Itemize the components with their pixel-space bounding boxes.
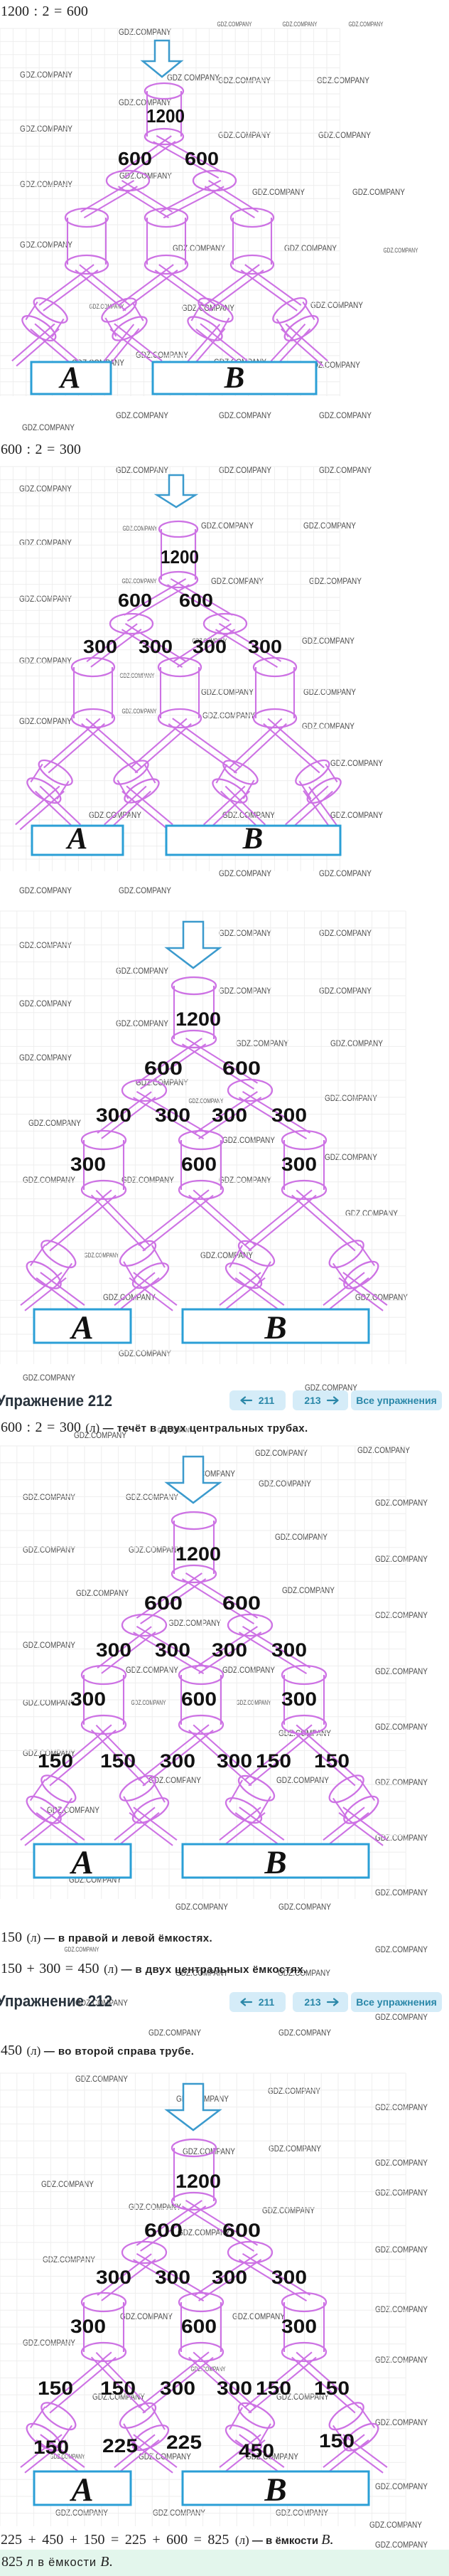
svg-text:GDZ.COMPANY: GDZ.COMPANY xyxy=(278,2028,331,2038)
svg-text:300: 300 xyxy=(70,2316,106,2337)
svg-text:GDZ.COMPANY: GDZ.COMPANY xyxy=(175,1902,228,1912)
svg-text:GDZ.COMPANY: GDZ.COMPANY xyxy=(20,240,72,250)
svg-text:300: 300 xyxy=(96,2267,131,2288)
svg-text:GDZ.COMPANY: GDZ.COMPANY xyxy=(120,2311,173,2321)
svg-text:150: 150 xyxy=(256,1750,291,1772)
svg-text:GDZ.COMPANY: GDZ.COMPANY xyxy=(22,422,75,432)
svg-text:600: 600 xyxy=(144,1058,183,1079)
svg-text:1200 : 2 = 600: 1200 : 2 = 600 xyxy=(1,4,88,19)
svg-text:GDZ.COMPANY: GDZ.COMPANY xyxy=(20,70,72,80)
svg-text:GDZ.COMPANY: GDZ.COMPANY xyxy=(283,21,318,28)
svg-text:150: 150 xyxy=(38,1750,73,1772)
svg-text:150: 150 xyxy=(100,2378,136,2399)
svg-text:1200: 1200 xyxy=(161,546,199,568)
svg-text:300: 300 xyxy=(212,1639,247,1661)
svg-text:300: 300 xyxy=(155,1105,190,1126)
svg-text:225: 225 xyxy=(166,2432,202,2453)
svg-text:1200: 1200 xyxy=(146,105,185,127)
svg-text:GDZ.COMPANY: GDZ.COMPANY xyxy=(19,999,72,1008)
svg-text:A: A xyxy=(58,361,81,395)
svg-text:GDZ.COMPANY: GDZ.COMPANY xyxy=(375,2355,428,2365)
svg-text:450: 450 xyxy=(239,2440,274,2461)
svg-text:GDZ.COMPANY: GDZ.COMPANY xyxy=(318,130,371,140)
svg-text:300: 300 xyxy=(281,1154,317,1175)
svg-text:300: 300 xyxy=(271,2267,307,2288)
svg-text:GDZ.COMPANY: GDZ.COMPANY xyxy=(275,1532,328,1542)
svg-text:GDZ.COMPANY: GDZ.COMPANY xyxy=(375,2540,428,2550)
svg-text:GDZ.COMPANY: GDZ.COMPANY xyxy=(375,2245,428,2255)
svg-text:GDZ.COMPANY: GDZ.COMPANY xyxy=(19,594,72,604)
svg-text:300: 300 xyxy=(271,1639,307,1661)
svg-text:Все упражнения: Все упражнения xyxy=(356,1996,437,2008)
svg-text:Все упражнения: Все упражнения xyxy=(356,1395,437,1406)
svg-text:150: 150 xyxy=(38,2378,73,2399)
svg-text:GDZ.COMPANY: GDZ.COMPANY xyxy=(375,1498,428,1508)
svg-text:150: 150 xyxy=(33,2437,69,2458)
svg-text:GDZ.COMPANY: GDZ.COMPANY xyxy=(269,2144,321,2154)
svg-text:A: A xyxy=(69,1309,93,1346)
svg-text:GDZ.COMPANY: GDZ.COMPANY xyxy=(255,1448,308,1458)
svg-text:GDZ.COMPANY: GDZ.COMPANY xyxy=(219,1175,271,1185)
svg-text:300: 300 xyxy=(160,1750,195,1772)
svg-text:GDZ.COMPANY: GDZ.COMPANY xyxy=(20,124,72,134)
svg-text:B: B xyxy=(264,1309,286,1346)
svg-text:GDZ.COMPANY: GDZ.COMPANY xyxy=(219,410,271,420)
svg-text:B: B xyxy=(224,361,245,395)
svg-text:GDZ.COMPANY: GDZ.COMPANY xyxy=(303,687,356,697)
svg-text:GDZ.COMPANY: GDZ.COMPANY xyxy=(319,928,372,938)
svg-text:300: 300 xyxy=(96,1105,131,1126)
svg-text:GDZ.COMPANY: GDZ.COMPANY xyxy=(148,2028,201,2038)
svg-text:300: 300 xyxy=(155,1639,190,1661)
svg-text:GDZ.COMPANY: GDZ.COMPANY xyxy=(19,538,72,548)
svg-text:GDZ.COMPANY: GDZ.COMPANY xyxy=(282,1585,335,1595)
svg-text:GDZ.COMPANY: GDZ.COMPANY xyxy=(375,2481,428,2491)
svg-text:600: 600 xyxy=(185,148,219,169)
svg-text:GDZ.COMPANY: GDZ.COMPANY xyxy=(129,1545,181,1555)
svg-text:300: 300 xyxy=(70,1688,106,1710)
svg-text:150: 150 xyxy=(319,2430,355,2452)
svg-text:1200: 1200 xyxy=(175,2171,221,2192)
svg-text:1200: 1200 xyxy=(175,1008,221,1030)
svg-text:300: 300 xyxy=(96,1639,131,1661)
svg-text:GDZ.COMPANY: GDZ.COMPANY xyxy=(302,721,355,731)
svg-text:600: 600 xyxy=(179,590,213,611)
svg-text:225: 225 xyxy=(102,2435,138,2457)
svg-text:GDZ.COMPANY: GDZ.COMPANY xyxy=(116,1018,168,1028)
svg-text:GDZ.COMPANY: GDZ.COMPANY xyxy=(119,1348,171,1358)
svg-text:GDZ.COMPANY: GDZ.COMPANY xyxy=(262,2205,315,2215)
svg-text:GDZ.COMPANY: GDZ.COMPANY xyxy=(319,410,372,420)
svg-text:GDZ.COMPANY: GDZ.COMPANY xyxy=(303,521,356,531)
svg-text:600: 600 xyxy=(222,2220,261,2241)
svg-text:600: 600 xyxy=(222,1592,261,1614)
svg-text:GDZ.COMPANY: GDZ.COMPANY xyxy=(369,2520,422,2530)
svg-text:GDZ.COMPANY: GDZ.COMPANY xyxy=(122,578,157,585)
svg-text:600 : 2 = 300 (л) — течёт в дв: 600 : 2 = 300 (л) — течёт в двух централ… xyxy=(1,1420,308,1435)
svg-text:211: 211 xyxy=(259,1395,275,1406)
svg-text:GDZ.COMPANY: GDZ.COMPANY xyxy=(375,1666,428,1676)
svg-text:B: B xyxy=(264,1844,286,1881)
svg-text:600: 600 xyxy=(144,2220,183,2241)
svg-text:300: 300 xyxy=(248,636,282,657)
svg-text:GDZ.COMPANY: GDZ.COMPANY xyxy=(19,716,72,726)
svg-text:GDZ.COMPANY: GDZ.COMPANY xyxy=(123,525,158,532)
svg-text:GDZ.COMPANY: GDZ.COMPANY xyxy=(357,1445,410,1455)
svg-text:600: 600 xyxy=(144,1592,183,1614)
svg-text:GDZ.COMPANY: GDZ.COMPANY xyxy=(119,885,171,895)
svg-text:Упражнение 212: Упражнение 212 xyxy=(0,1392,112,1410)
svg-text:GDZ.COMPANY: GDZ.COMPANY xyxy=(28,1118,81,1128)
svg-text:GDZ.COMPANY: GDZ.COMPANY xyxy=(349,21,384,28)
svg-text:GDZ.COMPANY: GDZ.COMPANY xyxy=(121,1175,174,1185)
svg-text:GDZ.COMPANY: GDZ.COMPANY xyxy=(375,2417,428,2427)
svg-text:A: A xyxy=(69,1844,93,1881)
svg-text:Упражнение 212: Упражнение 212 xyxy=(0,1992,112,2010)
svg-text:213: 213 xyxy=(304,1395,321,1406)
svg-text:GDZ.COMPANY: GDZ.COMPANY xyxy=(375,1777,428,1787)
svg-text:GDZ.COMPANY: GDZ.COMPANY xyxy=(122,708,157,715)
svg-text:GDZ.COMPANY: GDZ.COMPANY xyxy=(219,986,271,996)
svg-text:GDZ.COMPANY: GDZ.COMPANY xyxy=(375,1888,428,1898)
svg-text:GDZ.COMPANY: GDZ.COMPANY xyxy=(19,1053,72,1063)
svg-text:GDZ.COMPANY: GDZ.COMPANY xyxy=(325,1152,377,1162)
svg-text:GDZ.COMPANY: GDZ.COMPANY xyxy=(330,758,383,768)
svg-text:300: 300 xyxy=(70,1154,106,1175)
svg-text:GDZ.COMPANY: GDZ.COMPANY xyxy=(173,243,225,253)
svg-text:GDZ.COMPANY: GDZ.COMPANY xyxy=(76,1588,129,1598)
svg-text:300: 300 xyxy=(212,1105,247,1126)
svg-text:300: 300 xyxy=(217,2378,252,2399)
svg-text:GDZ.COMPANY: GDZ.COMPANY xyxy=(217,21,252,28)
svg-text:211: 211 xyxy=(259,1996,275,2008)
svg-text:GDZ.COMPANY: GDZ.COMPANY xyxy=(19,484,72,494)
svg-text:600: 600 xyxy=(181,1154,217,1175)
svg-text:150 (л) — в правой и левой ёмк: 150 (л) — в правой и левой ёмкостях. xyxy=(1,1930,212,1945)
svg-text:GDZ.COMPANY: GDZ.COMPANY xyxy=(19,885,72,895)
svg-text:150 + 300 = 450 (л) — в двух ц: 150 + 300 = 450 (л) — в двух центральных… xyxy=(1,1961,307,1976)
svg-text:GDZ.COMPANY: GDZ.COMPANY xyxy=(375,2158,428,2168)
svg-text:GDZ.COMPANY: GDZ.COMPANY xyxy=(222,1665,275,1675)
svg-text:GDZ.COMPANY: GDZ.COMPANY xyxy=(116,966,168,976)
svg-text:GDZ.COMPANY: GDZ.COMPANY xyxy=(252,187,305,197)
svg-text:B: B xyxy=(242,822,264,856)
svg-text:A: A xyxy=(65,822,88,856)
svg-text:300: 300 xyxy=(193,636,227,657)
svg-text:825 л в ёмкости B.: 825 л в ёмкости B. xyxy=(1,2554,112,2570)
svg-text:GDZ.COMPANY: GDZ.COMPANY xyxy=(219,868,271,878)
svg-text:GDZ.COMPANY: GDZ.COMPANY xyxy=(284,243,337,253)
svg-text:225 + 450 + 150 = 225 + 600 =: 225 + 450 + 150 = 225 + 600 = 825 (л) — … xyxy=(1,2532,333,2548)
svg-text:300: 300 xyxy=(160,2378,195,2399)
svg-text:GDZ.COMPANY: GDZ.COMPANY xyxy=(55,2508,108,2518)
svg-text:GDZ.COMPANY: GDZ.COMPANY xyxy=(65,1946,99,1953)
svg-text:GDZ.COMPANY: GDZ.COMPANY xyxy=(375,2012,428,2022)
svg-text:GDZ.COMPANY: GDZ.COMPANY xyxy=(168,1618,221,1628)
svg-text:GDZ.COMPANY: GDZ.COMPANY xyxy=(325,1093,377,1103)
svg-text:300: 300 xyxy=(212,2267,247,2288)
svg-text:GDZ.COMPANY: GDZ.COMPANY xyxy=(317,75,369,85)
svg-text:GDZ.COMPANY: GDZ.COMPANY xyxy=(222,1135,275,1145)
svg-text:GDZ.COMPANY: GDZ.COMPANY xyxy=(20,179,72,189)
svg-text:600: 600 xyxy=(118,590,152,611)
svg-text:150: 150 xyxy=(314,2378,350,2399)
svg-text:GDZ.COMPANY: GDZ.COMPANY xyxy=(153,2508,205,2518)
svg-text:GDZ.COMPANY: GDZ.COMPANY xyxy=(375,1722,428,1732)
svg-text:300: 300 xyxy=(83,636,117,657)
svg-text:GDZ.COMPANY: GDZ.COMPANY xyxy=(375,2188,428,2198)
svg-text:300: 300 xyxy=(271,1105,307,1126)
svg-text:GDZ.COMPANY: GDZ.COMPANY xyxy=(268,2086,320,2096)
svg-text:GDZ.COMPANY: GDZ.COMPANY xyxy=(302,636,355,646)
svg-text:GDZ.COMPANY: GDZ.COMPANY xyxy=(278,1902,331,1912)
svg-text:GDZ.COMPANY: GDZ.COMPANY xyxy=(319,986,372,996)
svg-text:GDZ.COMPANY: GDZ.COMPANY xyxy=(189,1097,224,1105)
svg-text:150: 150 xyxy=(256,2378,291,2399)
svg-text:1200: 1200 xyxy=(175,1543,221,1565)
svg-text:A: A xyxy=(69,2471,93,2508)
svg-text:GDZ.COMPANY: GDZ.COMPANY xyxy=(345,1208,398,1218)
svg-text:150: 150 xyxy=(314,1750,350,1772)
svg-text:213: 213 xyxy=(304,1996,321,2008)
svg-text:GDZ.COMPANY: GDZ.COMPANY xyxy=(116,410,168,420)
svg-text:GDZ.COMPANY: GDZ.COMPANY xyxy=(375,2304,428,2314)
svg-text:GDZ.COMPANY: GDZ.COMPANY xyxy=(23,1373,75,1383)
svg-text:GDZ.COMPANY: GDZ.COMPANY xyxy=(232,2311,285,2321)
svg-text:300: 300 xyxy=(281,1688,317,1710)
svg-text:GDZ.COMPANY: GDZ.COMPANY xyxy=(19,656,72,666)
svg-text:450 (л) — во второй справа тру: 450 (л) — во второй справа трубе. xyxy=(1,2043,194,2058)
svg-text:GDZ.COMPANY: GDZ.COMPANY xyxy=(352,187,405,197)
svg-text:GDZ.COMPANY: GDZ.COMPANY xyxy=(276,2508,328,2518)
svg-text:300: 300 xyxy=(217,1750,252,1772)
svg-text:GDZ.COMPANY: GDZ.COMPANY xyxy=(219,928,271,938)
svg-text:GDZ.COMPANY: GDZ.COMPANY xyxy=(218,75,271,85)
svg-text:150: 150 xyxy=(100,1750,136,1772)
svg-text:GDZ.COMPANY: GDZ.COMPANY xyxy=(330,810,383,820)
svg-text:600: 600 xyxy=(181,2316,217,2337)
svg-text:600 : 2 = 300: 600 : 2 = 300 xyxy=(1,442,81,457)
svg-text:GDZ.COMPANY: GDZ.COMPANY xyxy=(310,300,363,310)
svg-text:600: 600 xyxy=(222,1058,261,1079)
svg-text:GDZ.COMPANY: GDZ.COMPANY xyxy=(375,1554,428,1564)
svg-text:GDZ.COMPANY: GDZ.COMPANY xyxy=(375,1944,428,1954)
svg-text:B: B xyxy=(264,2471,286,2508)
svg-text:300: 300 xyxy=(281,2316,317,2337)
svg-text:300: 300 xyxy=(155,2267,190,2288)
svg-text:300: 300 xyxy=(139,636,173,657)
svg-text:600: 600 xyxy=(181,1688,217,1710)
svg-text:600: 600 xyxy=(118,148,152,169)
svg-text:GDZ.COMPANY: GDZ.COMPANY xyxy=(218,130,271,140)
svg-text:GDZ.COMPANY: GDZ.COMPANY xyxy=(384,247,418,254)
